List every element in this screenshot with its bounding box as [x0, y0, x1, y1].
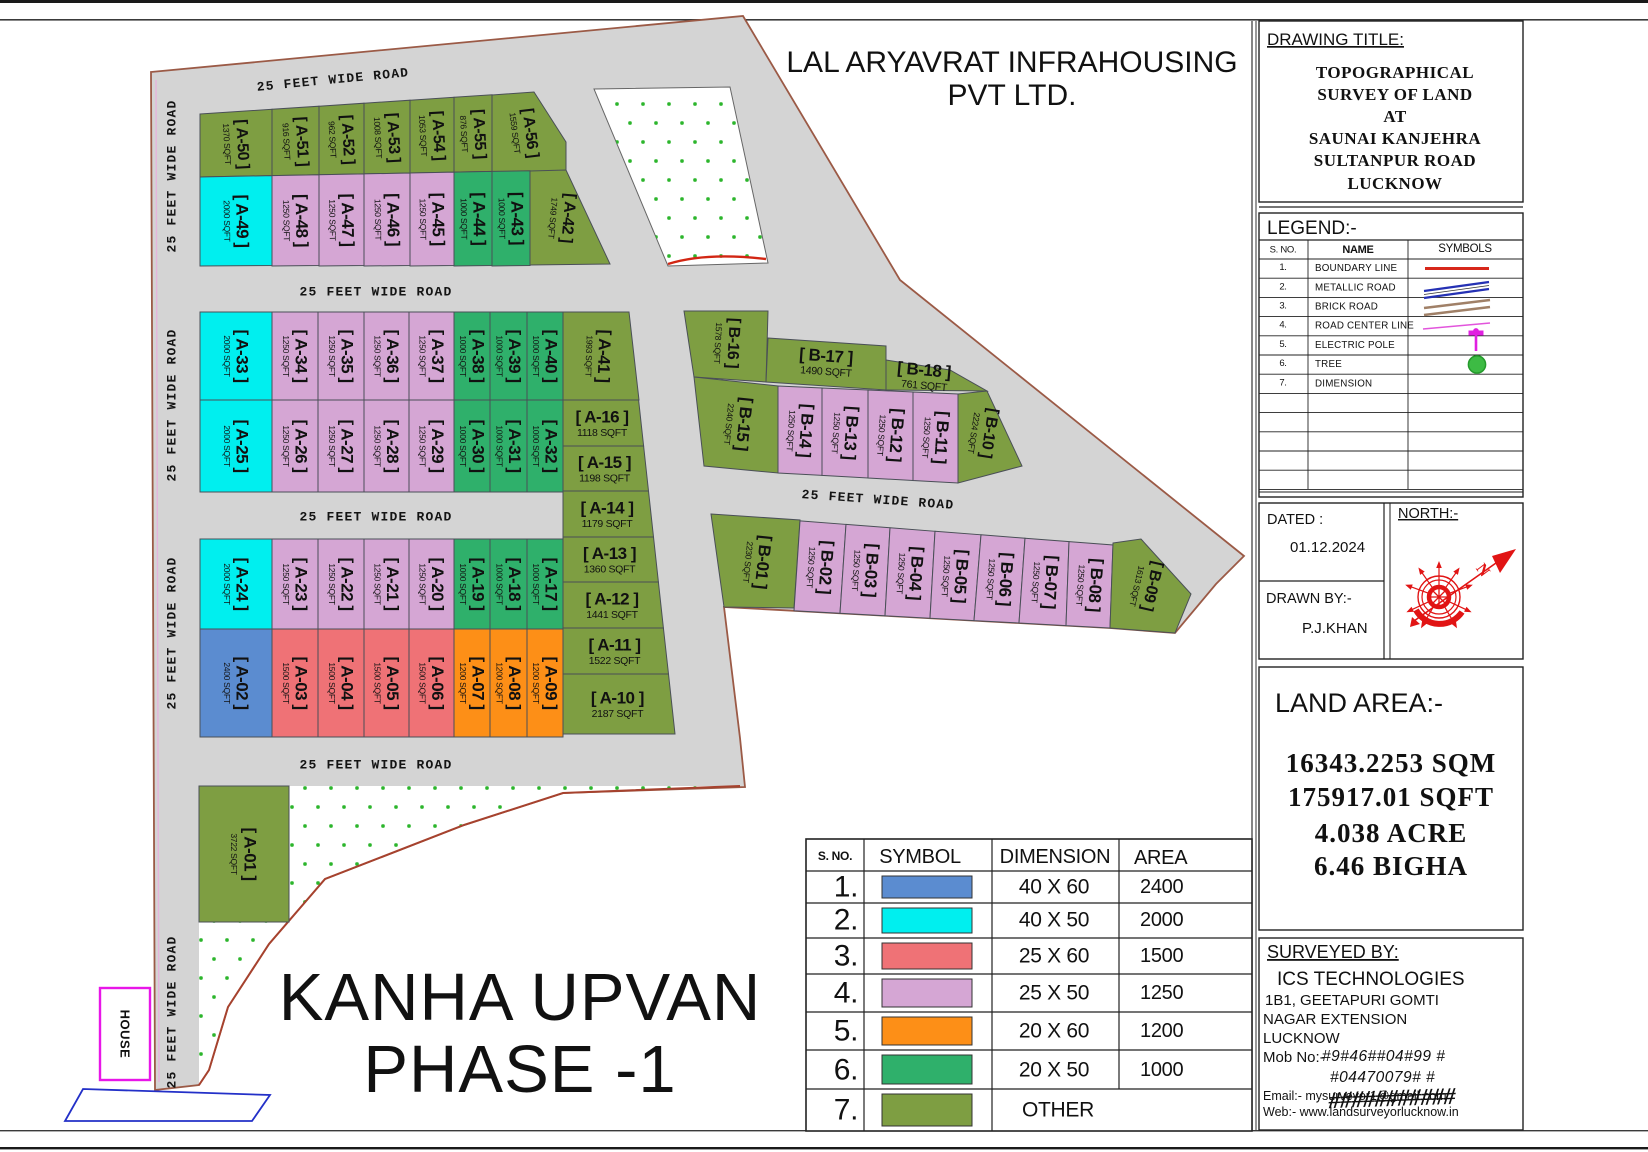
svg-text:2000 SQFT: 2000 SQFT	[222, 425, 232, 466]
svg-text:[ A-15 ]: [ A-15 ]	[578, 453, 631, 472]
svg-text:[ A-04 ]: [ A-04 ]	[338, 657, 357, 710]
svg-text:1000: 1000	[1140, 1059, 1183, 1081]
svg-text:2.: 2.	[1279, 281, 1286, 292]
svg-text:962 SQFT: 962 SQFT	[327, 121, 339, 158]
svg-text:SYMBOL: SYMBOL	[879, 846, 961, 868]
svg-text:PVT LTD.: PVT LTD.	[948, 79, 1077, 112]
svg-text:20 X 60: 20 X 60	[1019, 1020, 1089, 1043]
svg-text:DRAWN BY:-: DRAWN BY:-	[1266, 591, 1352, 607]
svg-text:1198 SQFT: 1198 SQFT	[579, 473, 631, 485]
svg-text:1200 SQFT: 1200 SQFT	[531, 662, 541, 703]
svg-text:1200 SQFT: 1200 SQFT	[495, 662, 505, 703]
svg-text:LUCKNOW: LUCKNOW	[1347, 174, 1442, 193]
svg-text:1500 SQFT: 1500 SQFT	[281, 662, 291, 703]
svg-text:3.: 3.	[834, 940, 858, 973]
svg-text:[ A-41 ]: [ A-41 ]	[594, 329, 615, 383]
svg-text:1250 SQFT: 1250 SQFT	[327, 199, 338, 241]
svg-text:[ A-01 ]: [ A-01 ]	[241, 828, 260, 881]
svg-text:BRICK ROAD: BRICK ROAD	[1315, 302, 1378, 313]
svg-text:1250 SQFT: 1250 SQFT	[418, 425, 428, 466]
svg-text:6.: 6.	[834, 1054, 858, 1087]
svg-text:AREA: AREA	[1134, 847, 1188, 869]
svg-text:1.: 1.	[834, 871, 858, 904]
svg-text:1250 SQFT: 1250 SQFT	[418, 563, 428, 604]
svg-text:2000: 2000	[1140, 909, 1183, 931]
svg-text:1500 SQFT: 1500 SQFT	[327, 662, 337, 703]
svg-text:1441 SQFT: 1441 SQFT	[586, 609, 638, 621]
svg-text:1000 SQFT: 1000 SQFT	[495, 335, 505, 376]
svg-text:[ A-07 ]: [ A-07 ]	[469, 657, 488, 710]
svg-text:SYMBOLS: SYMBOLS	[1438, 243, 1492, 255]
svg-text:4.: 4.	[834, 977, 858, 1010]
svg-text:4.: 4.	[1279, 320, 1286, 331]
svg-text:1B1, GEETAPURI GOMTI: 1B1, GEETAPURI GOMTI	[1265, 992, 1439, 1009]
svg-text:1993 SQFT: 1993 SQFT	[583, 335, 594, 377]
svg-text:1500 SQFT: 1500 SQFT	[418, 662, 428, 703]
svg-text:[ A-33 ]: [ A-33 ]	[233, 330, 252, 383]
svg-text:25 FEET WIDE ROAD: 25 FEET WIDE ROAD	[299, 510, 452, 525]
svg-text:OTHER: OTHER	[1022, 1099, 1094, 1122]
svg-text:1522 SQFT: 1522 SQFT	[589, 655, 641, 667]
svg-text:NORTH:-: NORTH:-	[1398, 506, 1458, 522]
svg-text:DIMENSION: DIMENSION	[1315, 378, 1372, 389]
svg-text:1000 SQFT: 1000 SQFT	[531, 563, 541, 604]
svg-text:DRAWING TITLE:: DRAWING TITLE:	[1267, 30, 1404, 49]
svg-text:[ A-39 ]: [ A-39 ]	[505, 330, 524, 383]
svg-text:25 FEET WIDE ROAD: 25 FEET WIDE ROAD	[299, 285, 452, 300]
svg-text:16343.2253 SQM: 16343.2253 SQM	[1286, 748, 1497, 778]
svg-text:#04470079# #: #04470079# #	[1330, 1069, 1435, 1086]
svg-text:1000 SQFT: 1000 SQFT	[458, 563, 468, 604]
svg-text:[ B-16 ]: [ B-16 ]	[723, 317, 743, 368]
svg-text:DATED :: DATED :	[1267, 512, 1323, 528]
svg-text:TOPOGRAPHICAL: TOPOGRAPHICAL	[1316, 63, 1474, 82]
svg-text:[ A-09 ]: [ A-09 ]	[542, 657, 561, 710]
svg-text:[ A-37 ]: [ A-37 ]	[428, 330, 447, 383]
svg-text:1250 SQFT: 1250 SQFT	[281, 563, 291, 604]
svg-text:S. NO.: S. NO.	[1270, 245, 1297, 256]
svg-text:SULTANPUR ROAD: SULTANPUR ROAD	[1314, 151, 1476, 170]
svg-text:[ A-46 ]: [ A-46 ]	[383, 193, 403, 246]
svg-text:7.: 7.	[834, 1094, 858, 1127]
svg-text:ICS TECHNOLOGIES: ICS TECHNOLOGIES	[1277, 969, 1465, 990]
svg-text:1250 SQFT: 1250 SQFT	[281, 335, 291, 376]
svg-text:876 SQFT: 876 SQFT	[458, 115, 470, 152]
svg-text:2000 SQFT: 2000 SQFT	[222, 335, 232, 376]
svg-text:LAL ARYAVRAT INFRAHOUSING: LAL ARYAVRAT INFRAHOUSING	[786, 46, 1237, 79]
svg-text:[ A-34 ]: [ A-34 ]	[292, 330, 311, 383]
svg-text:[ A-20 ]: [ A-20 ]	[428, 558, 447, 611]
svg-text:1000 SQFT: 1000 SQFT	[458, 425, 468, 466]
svg-text:METALLIC ROAD: METALLIC ROAD	[1315, 282, 1396, 293]
svg-text:1360 SQFT: 1360 SQFT	[584, 564, 636, 576]
svg-text:ROAD CENTER LINE: ROAD CENTER LINE	[1315, 321, 1414, 332]
svg-text:5.: 5.	[1279, 339, 1286, 350]
svg-text:[ A-44 ]: [ A-44 ]	[469, 192, 489, 245]
svg-text:[ A-45 ]: [ A-45 ]	[428, 193, 448, 246]
svg-text:[ A-40 ]: [ A-40 ]	[542, 330, 561, 383]
svg-text:LAND AREA:-: LAND AREA:-	[1275, 688, 1443, 718]
svg-text:[ A-28 ]: [ A-28 ]	[383, 420, 402, 473]
svg-text:[ A-19 ]: [ A-19 ]	[469, 558, 488, 611]
svg-text:3.: 3.	[1279, 301, 1286, 312]
svg-text:ELECTRIC POLE: ELECTRIC POLE	[1315, 340, 1395, 351]
svg-text:7.: 7.	[1279, 377, 1286, 388]
svg-text:1250 SQFT: 1250 SQFT	[327, 425, 337, 466]
svg-text:[ A-35 ]: [ A-35 ]	[338, 330, 357, 383]
svg-text:[ A-06 ]: [ A-06 ]	[428, 657, 447, 710]
svg-text:1000 SQFT: 1000 SQFT	[497, 198, 508, 240]
svg-text:[ A-02 ]: [ A-02 ]	[233, 657, 252, 710]
svg-text:[ A-03 ]: [ A-03 ]	[292, 657, 311, 710]
svg-text:[ A-38 ]: [ A-38 ]	[469, 330, 488, 383]
svg-text:HOUSE: HOUSE	[118, 1010, 133, 1059]
svg-text:2000 SQFT: 2000 SQFT	[222, 200, 233, 242]
svg-text:[ A-26 ]: [ A-26 ]	[292, 420, 311, 473]
svg-text:1200 SQFT: 1200 SQFT	[458, 662, 468, 703]
svg-text:25 FEET WIDE ROAD: 25 FEET WIDE ROAD	[165, 99, 180, 252]
svg-text:4.038 ACRE: 4.038 ACRE	[1315, 818, 1468, 848]
svg-text:[ A-31 ]: [ A-31 ]	[505, 420, 524, 473]
svg-text:1250: 1250	[1140, 982, 1183, 1004]
svg-text:[ A-10 ]: [ A-10 ]	[591, 689, 644, 708]
svg-text:LUCKNOW: LUCKNOW	[1263, 1030, 1341, 1047]
svg-text:[ A-12 ]: [ A-12 ]	[586, 590, 639, 609]
svg-text:6.: 6.	[1279, 358, 1286, 369]
svg-text:[ A-13 ]: [ A-13 ]	[583, 544, 636, 563]
svg-text:[ A-17 ]: [ A-17 ]	[542, 558, 561, 611]
svg-text:2.: 2.	[834, 904, 858, 937]
svg-text:25 X 60: 25 X 60	[1019, 945, 1089, 968]
svg-text:[ A-11 ]: [ A-11 ]	[588, 636, 640, 655]
svg-text:1250 SQFT: 1250 SQFT	[281, 200, 292, 242]
svg-text:1000 SQFT: 1000 SQFT	[531, 425, 541, 466]
svg-text:25 X 50: 25 X 50	[1019, 982, 1089, 1005]
svg-text:NAGAR EXTENSION: NAGAR EXTENSION	[1263, 1011, 1407, 1028]
svg-text:1250 SQFT: 1250 SQFT	[373, 425, 383, 466]
svg-text:1250 SQFT: 1250 SQFT	[327, 335, 337, 376]
svg-text:[ A-47 ]: [ A-47 ]	[338, 193, 358, 246]
svg-text:[ A-52 ]: [ A-52 ]	[338, 114, 358, 165]
svg-text:[ A-14 ]: [ A-14 ]	[581, 499, 634, 518]
svg-text:[ A-21 ]: [ A-21 ]	[383, 558, 402, 611]
svg-text:2400 SQFT: 2400 SQFT	[222, 662, 232, 703]
svg-text:BOUNDARY LINE: BOUNDARY LINE	[1315, 263, 1398, 274]
svg-text:S. NO.: S. NO.	[818, 849, 852, 863]
svg-text:[ A-16 ]: [ A-16 ]	[576, 408, 629, 427]
svg-text:1250 SQFT: 1250 SQFT	[373, 563, 383, 604]
svg-text:1.: 1.	[1279, 262, 1286, 273]
svg-text:[ A-50 ]: [ A-50 ]	[232, 119, 252, 170]
svg-text:AT: AT	[1383, 107, 1407, 126]
svg-text:LEGEND:-: LEGEND:-	[1267, 218, 1357, 239]
svg-text:1000 SQFT: 1000 SQFT	[495, 425, 505, 466]
svg-text:[ A-51 ]: [ A-51 ]	[292, 116, 312, 167]
svg-text:NAME: NAME	[1342, 244, 1373, 256]
svg-text:SURVEY OF LAND: SURVEY OF LAND	[1317, 85, 1472, 104]
svg-text:KANHA UPVAN: KANHA UPVAN	[279, 960, 762, 1035]
svg-text:1250 SQFT: 1250 SQFT	[327, 563, 337, 604]
svg-text:175917.01 SQFT: 175917.01 SQFT	[1288, 782, 1494, 812]
svg-text:[ A-48 ]: [ A-48 ]	[292, 194, 312, 247]
svg-text:[ A-53 ]: [ A-53 ]	[383, 112, 403, 163]
svg-text:[ A-29 ]: [ A-29 ]	[428, 420, 447, 473]
svg-text:P.J.KHAN: P.J.KHAN	[1302, 620, 1368, 637]
svg-text:[ A-05 ]: [ A-05 ]	[383, 657, 402, 710]
svg-text:25 FEET WIDE ROAD: 25 FEET WIDE ROAD	[165, 935, 180, 1088]
svg-text:1000 SQFT: 1000 SQFT	[459, 198, 470, 240]
svg-text:1179 SQFT: 1179 SQFT	[582, 518, 634, 530]
svg-text:[ A-54 ]: [ A-54 ]	[428, 110, 448, 161]
svg-text:1200: 1200	[1140, 1020, 1183, 1042]
svg-text:2000 SQFT: 2000 SQFT	[222, 563, 232, 604]
svg-text:[ A-55 ]: [ A-55 ]	[469, 109, 489, 160]
svg-text:25 FEET WIDE ROAD: 25 FEET WIDE ROAD	[165, 556, 180, 709]
svg-text:[ A-25 ]: [ A-25 ]	[233, 420, 252, 473]
svg-text:[ A-08 ]: [ A-08 ]	[505, 657, 524, 710]
svg-text:25 FEET WIDE ROAD: 25 FEET WIDE ROAD	[165, 328, 180, 481]
svg-text:01.12.2024: 01.12.2024	[1290, 539, 1365, 556]
svg-text:PHASE -1: PHASE -1	[363, 1032, 676, 1107]
svg-text:[ A-27 ]: [ A-27 ]	[338, 420, 357, 473]
svg-text:[ A-36 ]: [ A-36 ]	[383, 330, 402, 383]
svg-text:1118 SQFT: 1118 SQFT	[577, 427, 628, 439]
svg-text:1250 SQFT: 1250 SQFT	[418, 335, 428, 376]
svg-text:[ A-30 ]: [ A-30 ]	[469, 420, 488, 473]
svg-text:2187 SQFT: 2187 SQFT	[592, 708, 644, 720]
svg-text:[ A-23 ]: [ A-23 ]	[292, 558, 311, 611]
svg-text:20 X 50: 20 X 50	[1019, 1059, 1089, 1082]
svg-text:1500 SQFT: 1500 SQFT	[373, 662, 383, 703]
svg-text:Mob No:-: Mob No:-	[1263, 1049, 1325, 1066]
svg-text:1000 SQFT: 1000 SQFT	[495, 563, 505, 604]
svg-text:40 X 60: 40 X 60	[1019, 876, 1089, 899]
svg-text:1250 SQFT: 1250 SQFT	[373, 199, 384, 241]
svg-text:1250 SQFT: 1250 SQFT	[373, 335, 383, 376]
svg-text:TREE: TREE	[1315, 359, 1342, 370]
svg-text:[ A-32 ]: [ A-32 ]	[542, 420, 561, 473]
svg-text:[ A-43 ]: [ A-43 ]	[507, 192, 527, 245]
svg-text:DIMENSION: DIMENSION	[1000, 846, 1111, 868]
svg-text:#9#46##04#99 #: #9#46##04#99 #	[1322, 1048, 1445, 1065]
svg-text:40 X 50: 40 X 50	[1019, 909, 1089, 932]
svg-text:1250 SQFT: 1250 SQFT	[418, 198, 429, 240]
svg-text:###########: ###########	[1327, 1084, 1457, 1114]
svg-text:25 FEET WIDE ROAD: 25 FEET WIDE ROAD	[299, 758, 452, 773]
svg-text:1000 SQFT: 1000 SQFT	[458, 335, 468, 376]
svg-text:1250 SQFT: 1250 SQFT	[281, 425, 291, 466]
svg-text:1500: 1500	[1140, 945, 1183, 967]
svg-text:[ A-18 ]: [ A-18 ]	[505, 558, 524, 611]
svg-text:3722 SQFT: 3722 SQFT	[229, 833, 239, 874]
svg-text:[ A-24 ]: [ A-24 ]	[233, 558, 252, 611]
svg-text:SURVEYED BY:: SURVEYED BY:	[1267, 942, 1399, 962]
svg-text:916 SQFT: 916 SQFT	[281, 123, 293, 160]
svg-text:SAUNAI KANJEHRA: SAUNAI KANJEHRA	[1309, 129, 1482, 148]
svg-text:2400: 2400	[1140, 876, 1183, 898]
svg-text:1000 SQFT: 1000 SQFT	[531, 335, 541, 376]
svg-text:5.: 5.	[834, 1015, 858, 1048]
svg-text:6.46 BIGHA: 6.46 BIGHA	[1314, 851, 1468, 881]
svg-text:[ A-22 ]: [ A-22 ]	[338, 558, 357, 611]
svg-text:[ A-49 ]: [ A-49 ]	[232, 194, 252, 247]
